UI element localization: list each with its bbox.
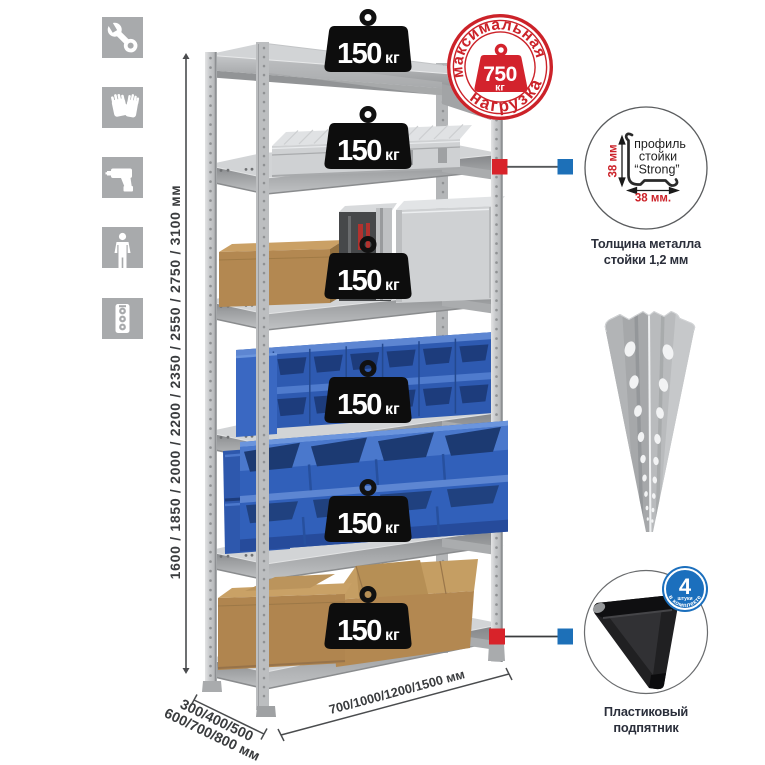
- svg-text:кг: кг: [385, 277, 400, 294]
- svg-text:кг: кг: [385, 627, 400, 644]
- svg-text:150: 150: [337, 265, 381, 297]
- svg-text:стойки: стойки: [639, 150, 677, 164]
- svg-text:“Strong”: “Strong”: [634, 163, 679, 177]
- svg-text:150: 150: [337, 615, 381, 647]
- svg-text:кг: кг: [385, 50, 400, 67]
- svg-text:38 мм.: 38 мм.: [635, 193, 671, 205]
- svg-text:кг: кг: [385, 147, 400, 164]
- svg-text:кг: кг: [385, 401, 400, 418]
- svg-text:Толщина металла: Толщина металла: [591, 236, 702, 251]
- svg-text:150: 150: [337, 389, 381, 421]
- svg-text:38 мм: 38 мм: [608, 144, 620, 177]
- svg-text:Пластиковый: Пластиковый: [604, 704, 688, 719]
- svg-text:150: 150: [337, 135, 381, 167]
- svg-text:стойки 1,2 мм: стойки 1,2 мм: [604, 252, 688, 267]
- svg-text:1600 / 1850 / 2000 / 2200 / 23: 1600 / 1850 / 2000 / 2200 / 2350 / 2550 …: [167, 185, 183, 580]
- svg-text:кг: кг: [385, 520, 400, 537]
- svg-text:подпятник: подпятник: [613, 720, 679, 735]
- svg-text:150: 150: [337, 38, 381, 70]
- svg-text:штуки: штуки: [677, 596, 692, 602]
- svg-text:кг: кг: [495, 82, 505, 94]
- svg-text:150: 150: [337, 508, 381, 540]
